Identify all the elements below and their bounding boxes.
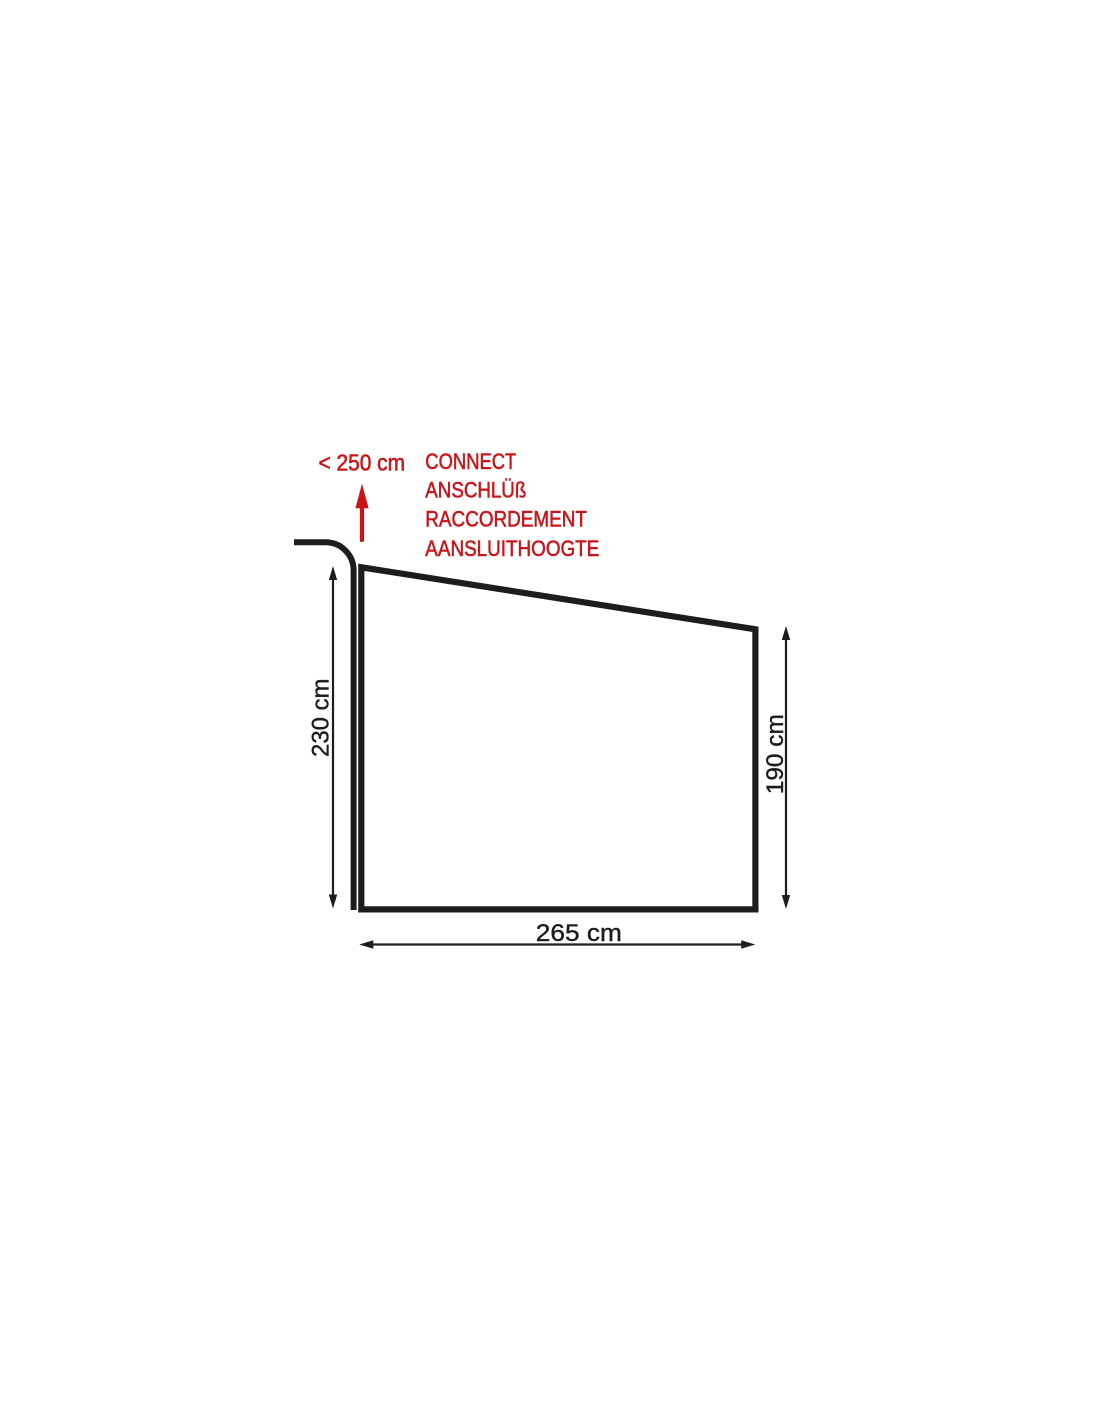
svg-text:ANSCHLÜß: ANSCHLÜß: [425, 478, 526, 503]
svg-text:RACCORDEMENT: RACCORDEMENT: [425, 506, 587, 531]
svg-text:265 cm: 265 cm: [536, 920, 622, 947]
svg-text:< 250 cm: < 250 cm: [319, 450, 406, 476]
svg-text:190 cm: 190 cm: [762, 714, 789, 794]
svg-text:230 cm: 230 cm: [308, 679, 335, 758]
svg-text:AANSLUITHOOGTE: AANSLUITHOOGTE: [425, 536, 599, 561]
svg-text:CONNECT: CONNECT: [425, 449, 516, 474]
